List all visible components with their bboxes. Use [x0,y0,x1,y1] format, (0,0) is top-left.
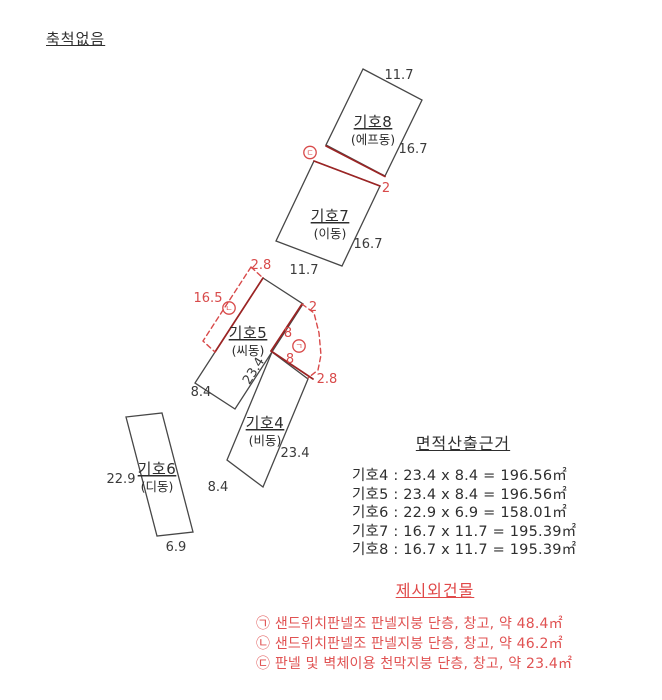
annex-a-dashed-outline [302,304,321,378]
extra-section-title: 제시외건물 [256,577,614,601]
building-alias-b4: (비동) [249,433,282,448]
dim-b5-bottom: 8.4 [191,385,212,400]
dim-annex-b-top: 2.8 [251,258,272,273]
extra-buildings-section: 제시외건물 ㉠ 샌드위치판넬조 판넬지붕 단층, 창고, 약 48.4㎡ ㉡ 샌… [256,577,614,674]
building-alias-b7: (이동) [314,226,347,241]
extra-row-a: ㉠ 샌드위치판넬조 판넬지붕 단층, 창고, 약 48.4㎡ [256,614,614,634]
building-alias-b6: (디동) [141,479,174,494]
extra-row-b: ㉡ 샌드위치판넬조 판넬지붕 단층, 창고, 약 46.2㎡ [256,634,614,654]
dim-b8-right: 16.7 [399,142,428,157]
area-row-b7: 기호7 : 16.7 x 11.7 = 195.39㎡ [352,523,574,542]
building-label-b4: 기호4 [246,414,285,432]
dim-b6-bottom: 6.9 [166,540,187,555]
area-row-b5: 기호5 : 23.4 x 8.4 = 196.56㎡ [352,486,574,505]
area-row-b4: 기호4 : 23.4 x 8.4 = 196.56㎡ [352,467,574,486]
building-alias-b5: (씨동) [232,343,265,358]
dim-b6-left: 22.9 [107,472,136,487]
building-label-b8: 기호8 [354,113,393,131]
building-label-b6: 기호6 [138,460,177,478]
dim-b4-bottom: 8.4 [208,480,229,495]
dim-annex-a-seg1: 8 [284,326,292,341]
dim-annex-a-top: 2 [309,300,317,315]
dim-b7-right: 16.7 [354,237,383,252]
dim-b8-top: 11.7 [385,68,414,83]
building-label-b5: 기호5 [229,324,268,342]
building-label-b7: 기호7 [311,207,350,225]
extra-row-c: ㉢ 판넬 및 벽체이용 천막지붕 단층, 창고, 약 23.4㎡ [256,654,614,674]
area-row-b6: 기호6 : 22.9 x 6.9 = 158.01㎡ [352,504,574,523]
dim-annex-a-bottom: 2.8 [317,372,338,387]
building-alias-b8: (에프동) [351,132,395,147]
dim-annex-b-length: 16.5 [194,291,223,306]
dim-b4-side: 23.4 [281,446,310,461]
area-section-title: 면적산출근거 [352,430,574,454]
annex-b-mark-letter: ㄴ [225,304,232,313]
annex-c-mark-letter: ㄷ [306,149,313,158]
dim-b7-bottom: 11.7 [290,263,319,278]
area-calculation-section: 면적산출근거 기호4 : 23.4 x 8.4 = 196.56㎡ 기호5 : … [352,430,574,560]
dim-annex-c-width: 2 [382,181,390,196]
dim-annex-a-seg2: 8 [286,352,294,367]
annex-a-mark-letter: ㄱ [295,342,302,351]
appraisal-sketch-sheet: 축척없음 ㄷ ㄴ ㄱ 11.7 16.7 16.7 11.7 8.4 23.4 … [0,0,662,700]
area-row-b8: 기호8 : 16.7 x 11.7 = 195.39㎡ [352,541,574,560]
